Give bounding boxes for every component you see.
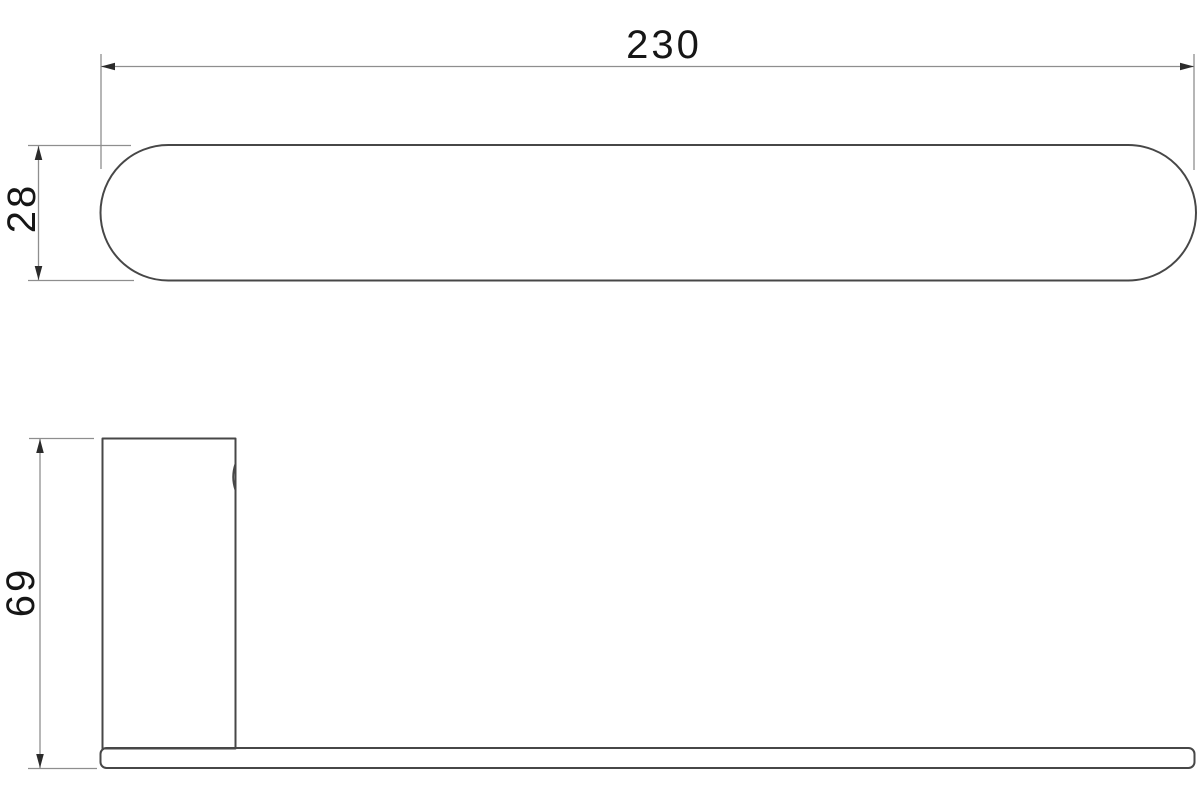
arrow-down-icon xyxy=(36,754,44,768)
dimension-label-height: 69 xyxy=(0,567,43,618)
technical-drawing-canvas: 230 28 69 xyxy=(0,0,1200,800)
top-view xyxy=(101,145,1197,281)
dimension-label-length: 230 xyxy=(626,23,702,67)
side-view-bracket-outline xyxy=(103,439,236,749)
arrow-left-icon xyxy=(101,63,115,71)
arrow-up-icon xyxy=(36,439,44,453)
arrow-down-icon xyxy=(35,266,43,280)
arrow-up-icon xyxy=(35,146,43,160)
technical-drawing-page: 230 28 69 xyxy=(0,0,1200,800)
dimension-length: 230 xyxy=(101,23,1194,170)
dimension-label-bar-depth: 28 xyxy=(0,183,44,234)
arrow-right-icon xyxy=(1180,63,1194,71)
side-view-baseplate-outline xyxy=(101,748,1195,768)
dimension-height: 69 xyxy=(0,439,97,769)
side-view xyxy=(101,439,1195,769)
top-view-bar-outline xyxy=(101,145,1197,281)
dimension-bar-depth: 28 xyxy=(0,146,134,281)
